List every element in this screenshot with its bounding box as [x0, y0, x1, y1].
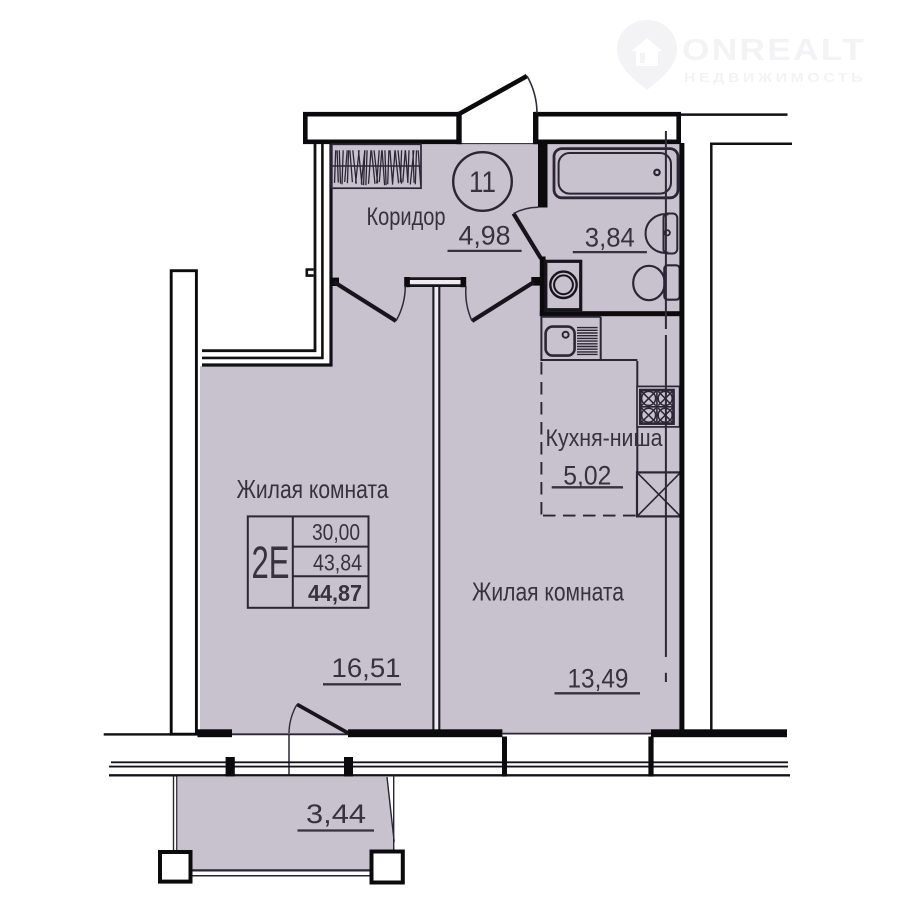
svg-text:2Е: 2Е: [252, 537, 290, 588]
svg-text:16,51: 16,51: [332, 653, 401, 683]
svg-text:43,84: 43,84: [313, 550, 362, 576]
svg-text:Жилая комната: Жилая комната: [472, 577, 624, 607]
svg-text:5,02: 5,02: [563, 461, 611, 491]
svg-text:44,87: 44,87: [308, 580, 362, 606]
svg-text:Коридор: Коридор: [367, 203, 446, 231]
svg-text:Кухня-ниша: Кухня-ниша: [546, 425, 663, 452]
svg-text:Жилая комната: Жилая комната: [237, 474, 389, 504]
svg-text:13,49: 13,49: [568, 664, 629, 694]
svg-text:НЕДВИЖИМОСТЬ: НЕДВИЖИМОСТЬ: [684, 70, 866, 85]
svg-text:3,84: 3,84: [585, 223, 635, 253]
svg-text:4,98: 4,98: [459, 221, 511, 251]
svg-text:30,00: 30,00: [312, 519, 360, 545]
svg-text:ONREALT: ONREALT: [682, 32, 866, 67]
svg-text:3,44: 3,44: [306, 799, 366, 829]
svg-text:11: 11: [469, 166, 496, 199]
